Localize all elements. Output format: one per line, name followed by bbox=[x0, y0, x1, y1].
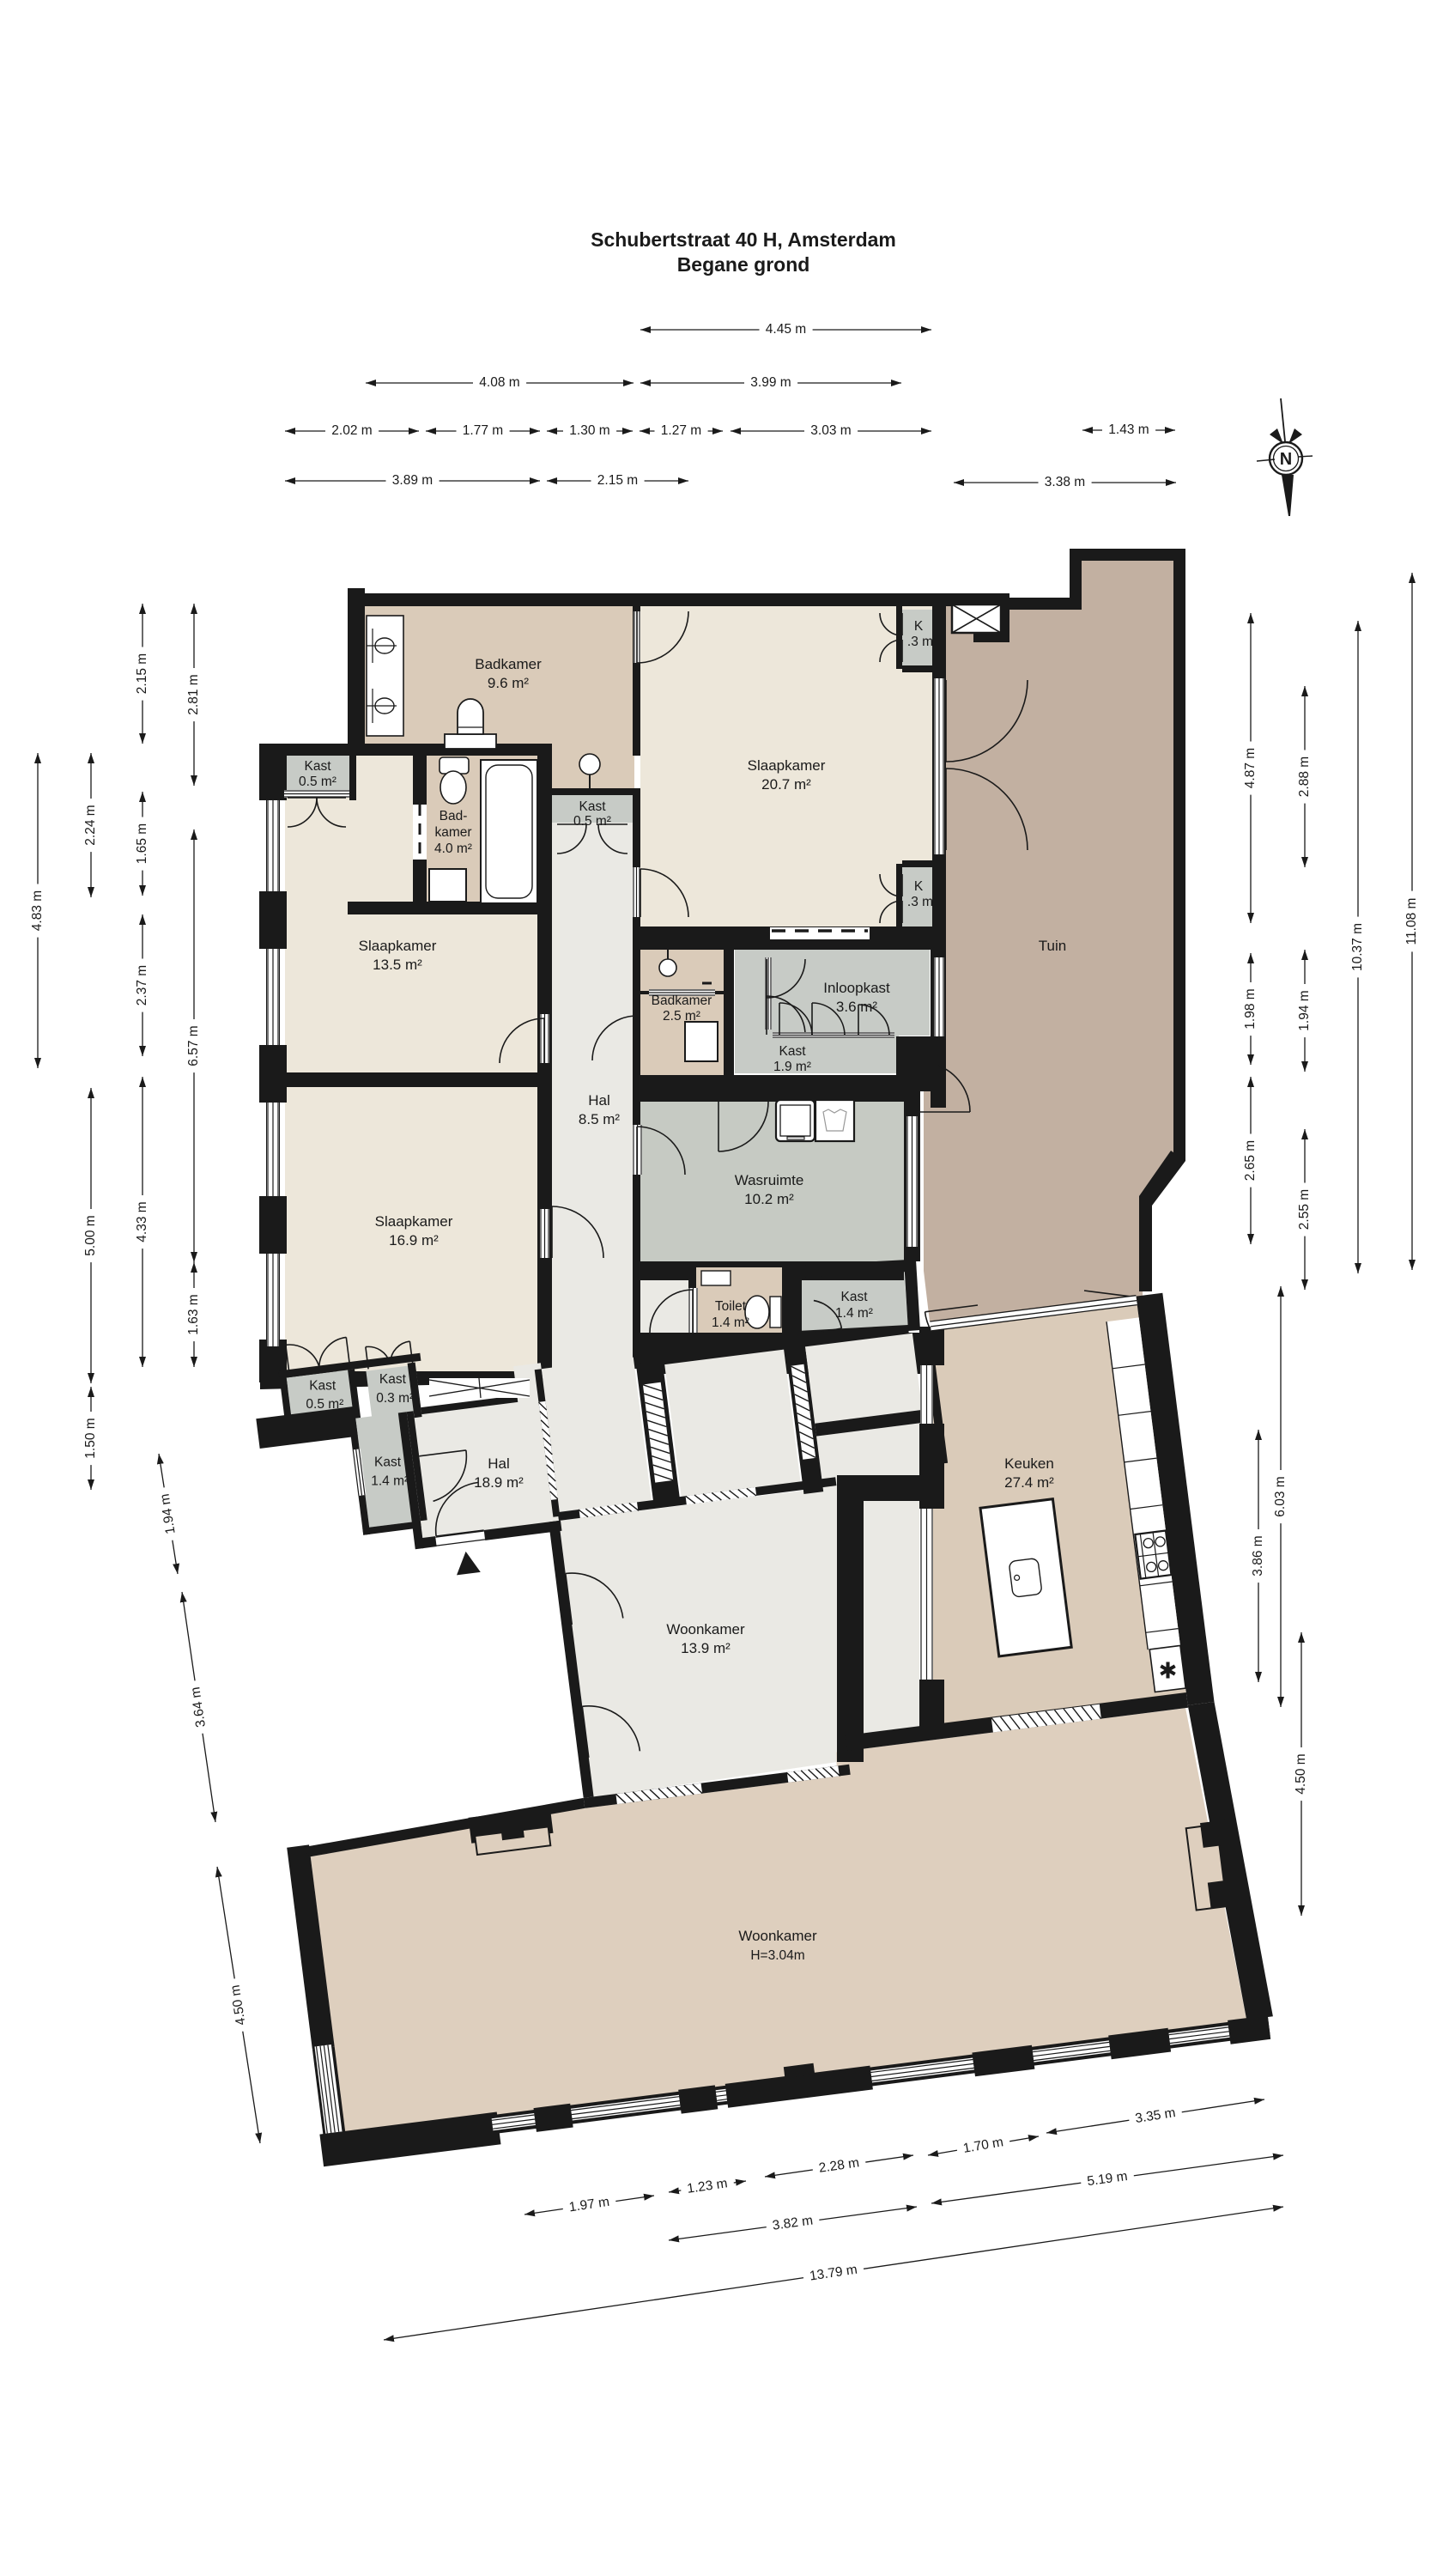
svg-text:Slaapkamer: Slaapkamer bbox=[748, 757, 826, 774]
svg-text:9.6 m²: 9.6 m² bbox=[488, 675, 530, 691]
svg-text:2.55 m: 2.55 m bbox=[1297, 1189, 1312, 1230]
svg-text:Badkamer: Badkamer bbox=[475, 656, 542, 672]
svg-text:13.5 m²: 13.5 m² bbox=[373, 957, 422, 973]
svg-text:Begane grond: Begane grond bbox=[677, 253, 810, 276]
svg-text:1.77 m: 1.77 m bbox=[463, 423, 503, 438]
svg-text:5.00 m: 5.00 m bbox=[83, 1215, 98, 1255]
svg-text:13.9 m²: 13.9 m² bbox=[681, 1640, 731, 1656]
svg-text:2.15 m: 2.15 m bbox=[135, 653, 149, 694]
svg-text:2.88 m: 2.88 m bbox=[1297, 756, 1312, 797]
svg-text:0.5 m²: 0.5 m² bbox=[299, 775, 336, 789]
svg-text:4.08 m: 4.08 m bbox=[479, 375, 519, 390]
svg-text:Hal: Hal bbox=[588, 1092, 610, 1109]
svg-text:2.81 m: 2.81 m bbox=[186, 674, 201, 714]
svg-text:Kast: Kast bbox=[379, 1372, 407, 1387]
svg-text:K: K bbox=[914, 879, 924, 894]
svg-text:Kast: Kast bbox=[779, 1044, 806, 1059]
svg-text:4.87 m: 4.87 m bbox=[1243, 748, 1258, 788]
svg-text:Kast: Kast bbox=[840, 1290, 868, 1304]
svg-text:Kast: Kast bbox=[374, 1455, 402, 1470]
svg-text:1.43 m: 1.43 m bbox=[1108, 422, 1149, 437]
svg-text:Hal: Hal bbox=[488, 1455, 510, 1472]
svg-text:.3 m: .3 m bbox=[907, 895, 933, 909]
svg-text:0.5 m²: 0.5 m² bbox=[306, 1397, 343, 1412]
svg-text:1.94 m: 1.94 m bbox=[1297, 990, 1312, 1030]
svg-text:1.30 m: 1.30 m bbox=[569, 423, 609, 438]
svg-text:4.0 m²: 4.0 m² bbox=[434, 841, 472, 856]
svg-text:0.5 m²: 0.5 m² bbox=[573, 814, 611, 829]
svg-text:1.4 m²: 1.4 m² bbox=[712, 1315, 749, 1330]
svg-text:N: N bbox=[1280, 450, 1292, 469]
svg-text:4.33 m: 4.33 m bbox=[135, 1201, 149, 1242]
svg-text:Woonkamer: Woonkamer bbox=[666, 1621, 745, 1637]
svg-text:1.65 m: 1.65 m bbox=[135, 823, 149, 864]
svg-text:Kast: Kast bbox=[304, 759, 331, 774]
svg-text:20.7 m²: 20.7 m² bbox=[761, 776, 811, 793]
svg-text:✱: ✱ bbox=[1159, 1658, 1178, 1684]
svg-text:Wasruimte: Wasruimte bbox=[735, 1172, 804, 1188]
svg-text:8.5 m²: 8.5 m² bbox=[579, 1111, 621, 1127]
svg-text:4.45 m: 4.45 m bbox=[766, 322, 806, 337]
svg-text:10.2 m²: 10.2 m² bbox=[744, 1191, 794, 1207]
svg-text:6.03 m: 6.03 m bbox=[1273, 1476, 1288, 1516]
svg-text:Tuin: Tuin bbox=[1039, 938, 1066, 954]
svg-text:Slaapkamer: Slaapkamer bbox=[359, 938, 437, 954]
svg-text:Keuken: Keuken bbox=[1004, 1455, 1054, 1472]
svg-text:1.27 m: 1.27 m bbox=[661, 423, 701, 438]
svg-text:1.4 m²: 1.4 m² bbox=[835, 1306, 873, 1321]
svg-text:Kast: Kast bbox=[309, 1378, 336, 1393]
svg-text:3.38 m: 3.38 m bbox=[1045, 475, 1085, 489]
svg-text:Woonkamer: Woonkamer bbox=[738, 1928, 817, 1944]
svg-text:Kast: Kast bbox=[579, 799, 606, 814]
svg-text:2.02 m: 2.02 m bbox=[331, 423, 372, 438]
svg-text:4.83 m: 4.83 m bbox=[30, 890, 45, 931]
svg-text:Badkamer: Badkamer bbox=[652, 993, 712, 1008]
svg-text:1.4 m²: 1.4 m² bbox=[371, 1473, 409, 1488]
svg-text:3.86 m: 3.86 m bbox=[1251, 1535, 1265, 1576]
svg-text:1.9 m²: 1.9 m² bbox=[773, 1060, 811, 1074]
svg-text:18.9 m²: 18.9 m² bbox=[474, 1474, 524, 1491]
svg-text:kamer: kamer bbox=[434, 825, 471, 840]
svg-text:2.65 m: 2.65 m bbox=[1243, 1140, 1258, 1181]
svg-text:16.9 m²: 16.9 m² bbox=[389, 1232, 439, 1249]
svg-text:3.99 m: 3.99 m bbox=[750, 375, 791, 390]
svg-text:1.98 m: 1.98 m bbox=[1243, 988, 1258, 1029]
svg-text:1.63 m: 1.63 m bbox=[186, 1294, 201, 1334]
svg-text:11.08 m: 11.08 m bbox=[1404, 898, 1419, 945]
svg-text:0.3 m²: 0.3 m² bbox=[376, 1391, 414, 1406]
svg-text:3.6 m²: 3.6 m² bbox=[836, 999, 878, 1015]
svg-text:27.4 m²: 27.4 m² bbox=[1004, 1474, 1054, 1491]
svg-text:Inloopkast: Inloopkast bbox=[823, 980, 890, 996]
svg-text:Schubertstraat 40 H, Amsterdam: Schubertstraat 40 H, Amsterdam bbox=[591, 228, 896, 251]
svg-text:1.50 m: 1.50 m bbox=[83, 1418, 98, 1458]
svg-text:2.24 m: 2.24 m bbox=[83, 805, 98, 845]
svg-text:3.89 m: 3.89 m bbox=[392, 473, 433, 488]
svg-text:Slaapkamer: Slaapkamer bbox=[375, 1213, 453, 1230]
svg-text:H=3.04m: H=3.04m bbox=[750, 1948, 804, 1963]
svg-text:3.03 m: 3.03 m bbox=[810, 423, 851, 438]
svg-text:2.37 m: 2.37 m bbox=[135, 965, 149, 1005]
svg-text:2.15 m: 2.15 m bbox=[597, 473, 638, 488]
svg-text:6.57 m: 6.57 m bbox=[186, 1025, 201, 1066]
svg-text:K: K bbox=[914, 619, 924, 634]
svg-text:Bad-: Bad- bbox=[440, 809, 468, 823]
svg-text:.3 m: .3 m bbox=[907, 635, 933, 649]
svg-text:Toilet: Toilet bbox=[715, 1299, 747, 1314]
svg-text:10.37 m: 10.37 m bbox=[1350, 923, 1365, 971]
svg-text:4.50 m: 4.50 m bbox=[1294, 1753, 1308, 1794]
